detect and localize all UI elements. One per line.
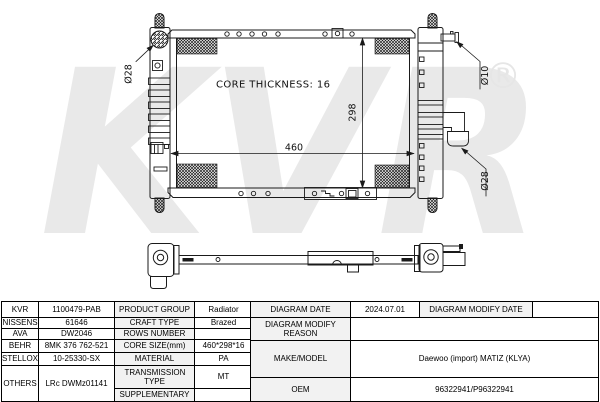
value-cell: MT bbox=[195, 366, 253, 389]
diagram-date-value: 2024.07.01 bbox=[351, 302, 420, 318]
pin-bottom-right bbox=[428, 198, 437, 213]
diagram-modify-date-value bbox=[533, 302, 599, 318]
fin-hatch-top-right bbox=[375, 39, 409, 55]
oem-label: OEM bbox=[251, 378, 351, 402]
code-cell: 8MK 376 762-521 bbox=[39, 340, 115, 353]
drain-cap bbox=[151, 31, 168, 48]
height-dim-label: 298 bbox=[348, 103, 359, 121]
table-row: KVR 1100479-PAB PRODUCT GROUP Radiator bbox=[2, 302, 253, 318]
table-row: OEM 96322941/P96322941 bbox=[251, 378, 599, 402]
pin-bottom-left bbox=[155, 198, 164, 213]
diagram-date-label: DIAGRAM DATE bbox=[251, 302, 351, 318]
brand-cell: KVR bbox=[2, 302, 39, 318]
table-row: DIAGRAM MODIFY REASON bbox=[251, 318, 599, 341]
table-row: BEHR 8MK 376 762-521 CORE SIZE(mm) 460*2… bbox=[2, 340, 253, 353]
value-cell: Brazed bbox=[195, 318, 253, 329]
diagram-info-table: DIAGRAM DATE 2024.07.01 DIAGRAM MODIFY D… bbox=[250, 301, 599, 402]
table-row: AVA DW2046 ROWS NUMBER bbox=[2, 329, 253, 340]
width-dim-label: 460 bbox=[285, 143, 303, 154]
value-cell bbox=[195, 329, 253, 340]
make-model-value: Daewoo (import) MATIZ (KLYA) bbox=[351, 341, 599, 378]
value-cell: PA bbox=[195, 353, 253, 366]
pin-top-right bbox=[428, 14, 437, 29]
cross-reference-table: KVR 1100479-PAB PRODUCT GROUP Radiator N… bbox=[1, 301, 253, 402]
core-thickness-label: CORE THICKNESS: 16 bbox=[216, 80, 330, 91]
inlet-diameter-label: Ø10 bbox=[480, 66, 491, 86]
fin-hatch-bottom-right bbox=[375, 165, 409, 188]
radiator-technical-diagram: KVR ® bbox=[0, 0, 600, 301]
fin-hatch-top-left bbox=[177, 39, 217, 55]
table-row: DIAGRAM DATE 2024.07.01 DIAGRAM MODIFY D… bbox=[251, 302, 599, 318]
outlet-diameter-label: Ø28 bbox=[480, 171, 491, 191]
diagram-modify-reason-label: DIAGRAM MODIFY REASON bbox=[251, 318, 351, 341]
code-cell: 61646 bbox=[39, 318, 115, 329]
value-cell: 460*298*16 bbox=[195, 340, 253, 353]
diagram-modify-date-label: DIAGRAM MODIFY DATE bbox=[420, 302, 533, 318]
value-cell bbox=[195, 389, 253, 402]
fin-hatch-bottom-left bbox=[177, 164, 217, 188]
attr-cell: PRODUCT GROUP bbox=[115, 302, 195, 318]
left-cap-diameter-label: Ø28 bbox=[124, 64, 135, 84]
attr-cell: CRAFT TYPE bbox=[115, 318, 195, 329]
brand-cell: AVA bbox=[2, 329, 39, 340]
table-row: STELLOX 10-25330-SX MATERIAL PA bbox=[2, 353, 253, 366]
table-row: NISSENS 61646 CRAFT TYPE Brazed bbox=[2, 318, 253, 329]
brand-cell: BEHR bbox=[2, 340, 39, 353]
brand-cell: STELLOX bbox=[2, 353, 39, 366]
brand-cell: OTHERS bbox=[2, 366, 39, 402]
make-model-label: MAKE/MODEL bbox=[251, 341, 351, 378]
code-cell: 10-25330-SX bbox=[39, 353, 115, 366]
value-cell: Radiator bbox=[195, 302, 253, 318]
attr-cell: CORE SIZE(mm) bbox=[115, 340, 195, 353]
attr-cell: MATERIAL bbox=[115, 353, 195, 366]
code-cell: DW2046 bbox=[39, 329, 115, 340]
attr-cell: ROWS NUMBER bbox=[115, 329, 195, 340]
attr-cell: TRANSMISSION TYPE bbox=[115, 366, 195, 389]
diagram-modify-reason-value bbox=[351, 318, 599, 341]
code-cell: 1100479-PAB bbox=[39, 302, 115, 318]
table-row: OTHERS LRc DWMz01141 TRANSMISSION TYPE M… bbox=[2, 366, 253, 389]
brand-cell: NISSENS bbox=[2, 318, 39, 329]
pin-top-left bbox=[155, 14, 164, 29]
table-row: MAKE/MODEL Daewoo (import) MATIZ (KLYA) bbox=[251, 341, 599, 378]
code-cell: LRc DWMz01141 bbox=[39, 366, 115, 402]
attr-cell: SUPPLEMENTARY bbox=[115, 389, 195, 402]
oem-value: 96322941/P96322941 bbox=[351, 378, 599, 402]
